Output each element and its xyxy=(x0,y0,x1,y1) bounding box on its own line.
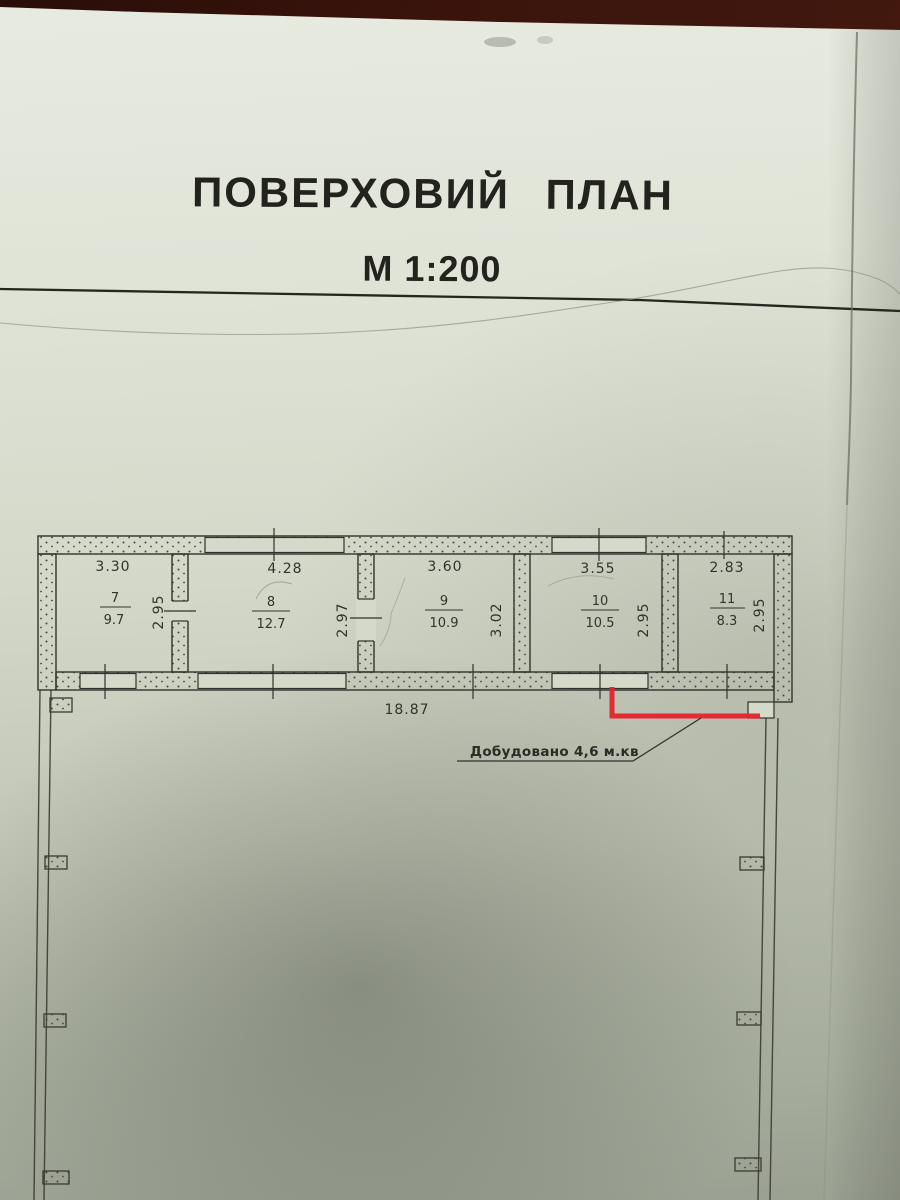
room-10-width-dim: 3.55 xyxy=(580,561,615,577)
wall-room10-11 xyxy=(662,554,678,672)
room-9-number: 9 xyxy=(440,594,448,609)
room-11-depth-dim: 2.95 xyxy=(752,597,768,632)
pencil-mark-room9 xyxy=(380,578,405,646)
room-8-number: 8 xyxy=(267,595,275,610)
room-10-depth-dim: 2.95 xyxy=(636,602,652,637)
floor-plan-drawing: 3.30 7 9.7 2.95 4.28 8 12.7 2.97 3.60 9 … xyxy=(0,0,900,1200)
wall-room9-10 xyxy=(514,554,530,672)
room-7-width-dim: 3.30 xyxy=(95,559,130,575)
wall-left xyxy=(38,554,56,690)
wall-bottom xyxy=(56,672,774,690)
pier xyxy=(737,1012,761,1025)
room-8-depth-dim: 2.97 xyxy=(335,602,351,637)
room-11-area: 8.3 xyxy=(717,614,738,629)
ink-smudge xyxy=(484,37,516,47)
opening-below-room7 xyxy=(80,674,136,689)
ink-smudge xyxy=(537,36,553,44)
paper-edge-crease xyxy=(847,32,857,505)
fold-crease-line xyxy=(0,289,900,311)
opening-below-room8 xyxy=(198,674,346,689)
wall-right xyxy=(774,554,792,702)
annotation-text: Добудовано 4,6 м.кв xyxy=(470,744,639,760)
room-7-number: 7 xyxy=(111,591,119,606)
paper-edge-crease-lower xyxy=(824,505,847,1200)
overall-length-dim: 18.87 xyxy=(384,702,429,718)
room-7-area: 9.7 xyxy=(104,613,125,628)
room-11-number: 11 xyxy=(719,592,736,607)
door-gap-wall8-9 xyxy=(356,599,376,641)
room-7-depth-dim: 2.95 xyxy=(151,594,167,629)
room-10-number: 10 xyxy=(592,594,609,609)
pier xyxy=(45,856,67,869)
room-10-area: 10.5 xyxy=(586,616,615,631)
pencil-arc-room10 xyxy=(548,576,614,586)
room-9-width-dim: 3.60 xyxy=(427,559,462,575)
pier xyxy=(50,698,72,712)
red-highlight-line xyxy=(612,687,760,716)
pier xyxy=(44,1014,66,1027)
pier xyxy=(740,857,764,870)
room-8-area: 12.7 xyxy=(257,617,286,632)
room-8-width-dim: 4.28 xyxy=(267,561,302,577)
room-9-area: 10.9 xyxy=(430,616,459,631)
pencil-squiggle-line xyxy=(0,268,900,335)
pier xyxy=(43,1171,69,1184)
room-9-depth-dim: 3.02 xyxy=(489,602,505,637)
wall-top xyxy=(38,536,792,554)
pier xyxy=(735,1158,761,1171)
yard-walls xyxy=(34,690,778,1200)
room-11-width-dim: 2.83 xyxy=(709,560,744,576)
